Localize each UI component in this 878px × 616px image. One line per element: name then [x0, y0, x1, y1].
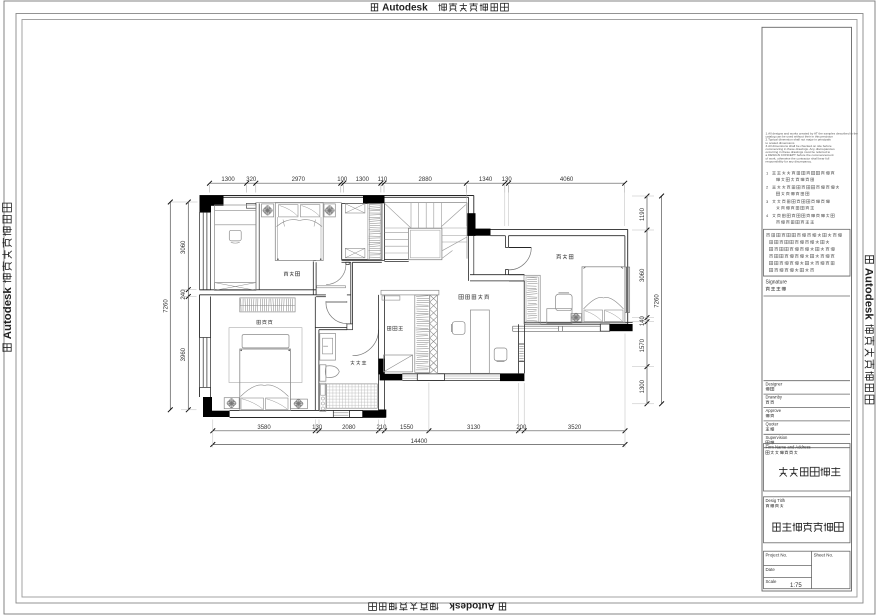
- svg-text:Date: Date: [766, 567, 776, 572]
- svg-text:100: 100: [337, 177, 348, 183]
- svg-text:Drawnby: Drawnby: [766, 395, 783, 400]
- svg-text:4060: 4060: [560, 177, 574, 183]
- svg-text:Autodesk: Autodesk: [863, 268, 875, 321]
- svg-text:1570: 1570: [640, 338, 646, 352]
- svg-text:Autodesk: Autodesk: [382, 3, 428, 14]
- svg-text:3960: 3960: [181, 347, 187, 361]
- svg-text:Designer: Designer: [766, 381, 783, 386]
- svg-text:1190: 1190: [640, 207, 646, 221]
- svg-text:200: 200: [516, 425, 527, 431]
- svg-text:Project No.: Project No.: [766, 553, 788, 558]
- svg-text:3580: 3580: [257, 425, 271, 431]
- svg-text:3130: 3130: [467, 425, 481, 431]
- svg-text:Autodesk: Autodesk: [449, 600, 495, 611]
- svg-text:14400: 14400: [411, 439, 428, 445]
- svg-text:240: 240: [181, 289, 187, 300]
- svg-text:2080: 2080: [342, 425, 356, 431]
- svg-text:130: 130: [502, 177, 513, 183]
- svg-text:1550: 1550: [400, 425, 414, 431]
- svg-text:110: 110: [378, 177, 388, 183]
- svg-text:responsibility for any discrep: responsibility for any discrepancy.: [766, 159, 812, 163]
- svg-text:140: 140: [640, 315, 646, 326]
- svg-text:3060: 3060: [181, 240, 187, 254]
- svg-text:Autodesk: Autodesk: [2, 287, 14, 340]
- svg-text:Supervision: Supervision: [766, 435, 789, 440]
- svg-text:1300: 1300: [221, 177, 235, 183]
- svg-text:2880: 2880: [419, 177, 433, 183]
- svg-text:130: 130: [312, 425, 323, 431]
- svg-text:210: 210: [376, 425, 387, 431]
- svg-text:Approve: Approve: [766, 408, 782, 413]
- svg-text:1340: 1340: [479, 177, 493, 183]
- svg-text:Scale: Scale: [766, 579, 778, 584]
- svg-text:7260: 7260: [163, 299, 169, 313]
- svg-text:3060: 3060: [640, 268, 646, 282]
- svg-text:Signature: Signature: [766, 280, 788, 286]
- svg-text:2970: 2970: [292, 177, 306, 183]
- svg-text:1300: 1300: [640, 379, 646, 393]
- svg-text:1300: 1300: [356, 177, 370, 183]
- svg-text:320: 320: [246, 177, 257, 183]
- svg-text:7260: 7260: [655, 294, 661, 308]
- svg-text:Quoter: Quoter: [766, 422, 779, 427]
- svg-text:Firm Name and Address: Firm Name and Address: [766, 445, 811, 450]
- svg-text:1:75: 1:75: [790, 583, 802, 589]
- svg-text:Sheet No.: Sheet No.: [814, 553, 834, 558]
- svg-text:3520: 3520: [568, 425, 582, 431]
- svg-text:Desig Titlh: Desig Titlh: [766, 498, 786, 503]
